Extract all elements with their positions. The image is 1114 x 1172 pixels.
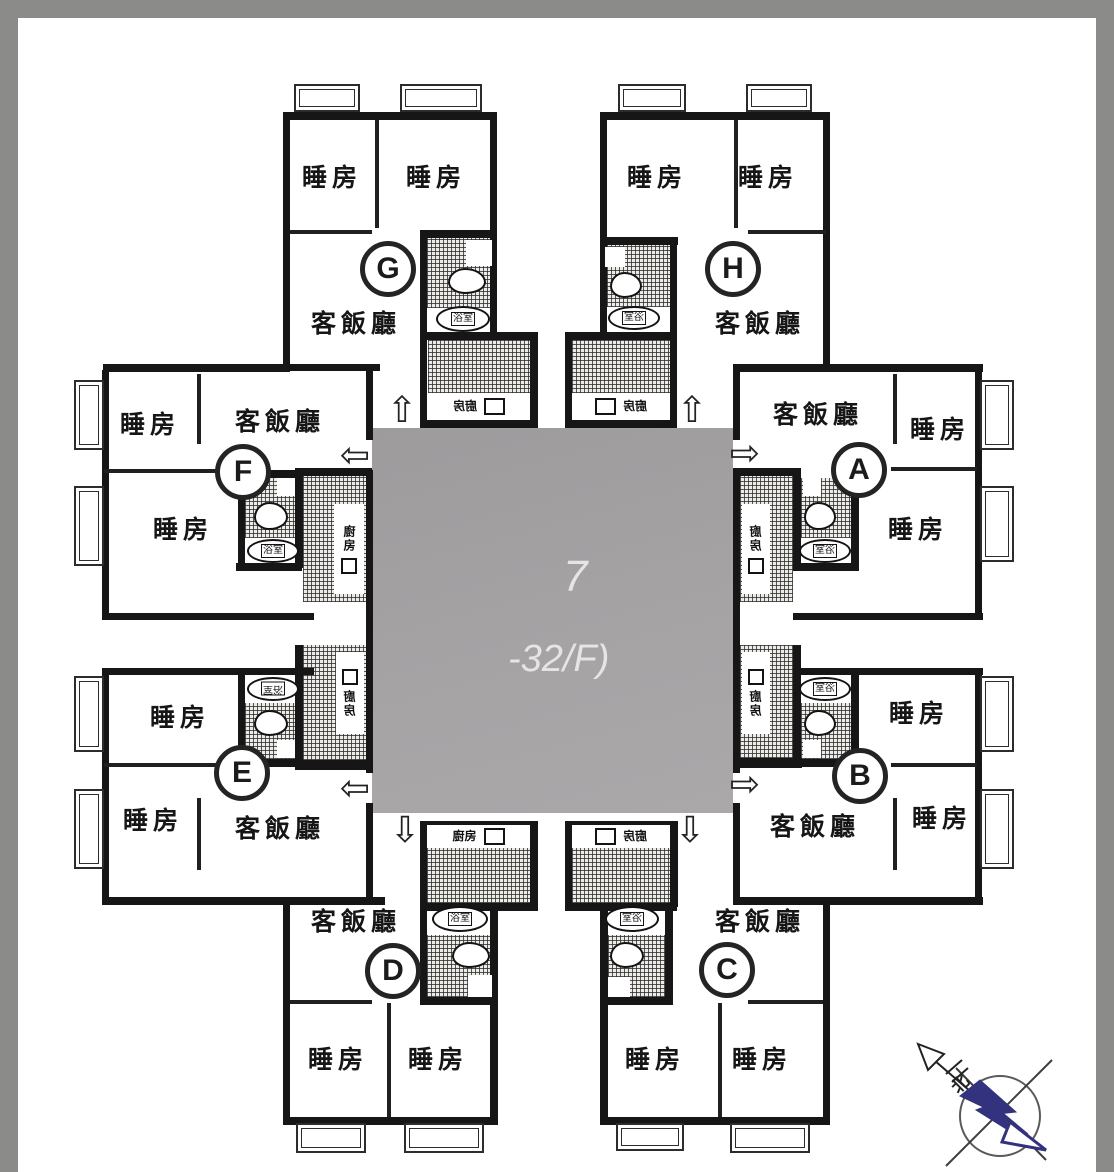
bathtub: 浴室 (436, 306, 490, 332)
wall (748, 1000, 826, 1004)
central-core (372, 428, 733, 813)
wall (530, 821, 538, 903)
wall (283, 905, 290, 1125)
window (980, 789, 1014, 869)
unit-h-badge: H (705, 241, 761, 297)
living-dining-label: 客飯廳 (770, 807, 860, 843)
toilet-icon (610, 272, 642, 298)
wall (366, 803, 373, 905)
wall (490, 903, 498, 1125)
wall (420, 230, 427, 428)
unit-g-badge: G (360, 241, 416, 297)
kitchen-hatch (428, 340, 530, 397)
window (74, 380, 104, 450)
bathroom-label: 浴室 (622, 311, 646, 325)
wall (600, 237, 678, 245)
unit-e-badge: E (214, 745, 270, 801)
wall (891, 467, 977, 471)
window (400, 84, 482, 112)
kitchen-sink-icon (595, 398, 616, 415)
shower-notch (277, 740, 295, 758)
frame-right (1096, 0, 1114, 1172)
window (296, 1123, 366, 1153)
kitchen-strip: 廚房 (572, 825, 670, 847)
living-dining-label: 客飯廳 (235, 809, 325, 845)
entrance-arrow-g-icon: ⇧ (387, 392, 417, 428)
bathroom-label: 浴室 (813, 682, 837, 696)
window (294, 84, 360, 112)
wall (823, 905, 830, 1125)
bathtub: 浴室 (799, 677, 851, 701)
entrance-arrow-f-icon: ⇦ (340, 437, 370, 473)
wall (103, 364, 290, 372)
bedroom-label: 睡房 (123, 801, 183, 837)
bathroom-label: 浴室 (620, 912, 644, 926)
kitchen-label: 廚房 (750, 690, 762, 718)
living-dining-label: 客飯廳 (715, 304, 805, 340)
entrance-arrow-h-icon: ⇧ (677, 392, 707, 428)
window (980, 486, 1014, 562)
toilet-icon (804, 710, 836, 736)
living-dining-label: 客飯廳 (773, 395, 863, 431)
wall (793, 563, 859, 571)
wall (748, 230, 826, 234)
wall (283, 112, 290, 371)
wall (600, 112, 830, 120)
toilet-icon (452, 942, 490, 968)
bathtub: 浴室 (247, 539, 299, 563)
shower-notch (468, 975, 492, 997)
wall (600, 997, 673, 1005)
bedroom-label: 睡房 (627, 158, 687, 194)
wall (490, 112, 497, 238)
core-floor-number: 7 (563, 552, 587, 602)
wall (236, 563, 302, 571)
kitchen-strip: 廚房 (336, 652, 364, 734)
kitchen-strip: 廚房 (572, 393, 670, 419)
shower-notch (605, 247, 625, 267)
window (618, 84, 686, 112)
compass-north-icon: 北 (912, 1038, 1072, 1168)
bedroom-label: 睡房 (150, 698, 210, 734)
living-dining-label: 客飯廳 (311, 304, 401, 340)
wall (102, 613, 314, 620)
wall (733, 470, 740, 773)
frame-top (0, 0, 1114, 18)
entrance-arrow-e-icon: ⇦ (340, 770, 370, 806)
window (980, 380, 1014, 450)
wall (793, 613, 983, 620)
bedroom-label: 睡房 (308, 1040, 368, 1076)
living-dining-label: 客飯廳 (235, 402, 325, 438)
entrance-arrow-b-icon: ⇨ (730, 766, 760, 802)
kitchen-label: 廚房 (453, 400, 477, 412)
wall (733, 364, 740, 440)
kitchen-label: 廚房 (343, 525, 355, 553)
kitchen-sink-icon (748, 669, 764, 685)
kitchen-strip: 廚房 (334, 504, 364, 594)
wall (420, 230, 497, 238)
wall (290, 1000, 372, 1004)
wall (793, 668, 983, 675)
bathroom-label: 浴室 (261, 682, 285, 696)
kitchen-label: 廚房 (623, 400, 647, 412)
window (404, 1123, 484, 1153)
wall (102, 668, 314, 675)
window (74, 676, 104, 752)
shower-notch (277, 478, 295, 496)
entrance-arrow-d-icon: ⇩ (390, 812, 420, 848)
unit-c-badge: C (699, 942, 755, 998)
kitchen-sink-icon (748, 558, 764, 574)
bedroom-label: 睡房 (153, 510, 213, 546)
wall (565, 821, 572, 903)
kitchen-label: 廚房 (344, 690, 356, 718)
bathroom-label: 浴室 (451, 312, 475, 326)
bathtub: 浴室 (608, 306, 660, 330)
wall (197, 798, 201, 870)
bedroom-label: 睡房 (625, 1040, 685, 1076)
wall (530, 332, 538, 428)
wall (565, 332, 572, 428)
wall (793, 645, 801, 767)
bedroom-label: 睡房 (408, 1040, 468, 1076)
bedroom-label: 睡房 (912, 799, 972, 835)
kitchen-strip: 廚房 (428, 393, 530, 419)
bedroom-label: 睡房 (888, 510, 948, 546)
shower-notch (803, 478, 821, 496)
shower-notch (803, 740, 821, 758)
living-dining-label: 客飯廳 (715, 902, 805, 938)
kitchen-hatch (572, 340, 670, 397)
bathtub: 浴室 (799, 539, 851, 563)
kitchen-label: 廚房 (623, 830, 647, 842)
entrance-arrow-a-icon: ⇨ (730, 435, 760, 471)
kitchen-sink-icon (595, 828, 616, 845)
window (74, 486, 104, 566)
wall (600, 903, 608, 1125)
unit-d-badge: D (365, 943, 421, 999)
kitchen-sink-icon (341, 558, 357, 574)
kitchen-sink-icon (484, 828, 505, 845)
bedroom-label: 睡房 (302, 158, 362, 194)
window (730, 1123, 810, 1153)
wall (420, 420, 538, 428)
toilet-icon (254, 710, 288, 736)
unit-f-badge: F (215, 444, 271, 500)
wall (893, 798, 897, 870)
unit-a-badge: A (831, 442, 887, 498)
kitchen-sink-icon (484, 398, 505, 415)
bathtub: 浴室 (432, 906, 488, 932)
toilet-icon (804, 502, 836, 530)
bathroom-label: 浴室 (261, 544, 285, 558)
window (980, 676, 1014, 752)
entrance-arrow-c-icon: ⇩ (675, 812, 705, 848)
shower-notch (466, 240, 492, 266)
wall (366, 364, 373, 440)
kitchen-hatch (572, 848, 670, 903)
wall (665, 903, 673, 997)
wall (891, 763, 977, 767)
wall (600, 112, 607, 245)
wall (283, 112, 497, 120)
kitchen-strip: 廚房 (742, 504, 770, 594)
frame-left (0, 0, 18, 1172)
bedroom-label: 睡房 (889, 694, 949, 730)
living-dining-label: 客飯廳 (311, 902, 401, 938)
wall (565, 332, 677, 340)
bedroom-label: 睡房 (738, 158, 798, 194)
bedroom-label: 睡房 (732, 1040, 792, 1076)
wall (735, 364, 983, 372)
kitchen-strip: 廚房 (427, 825, 530, 847)
kitchen-strip: 廚房 (742, 652, 770, 734)
wall (197, 374, 201, 444)
wall (733, 803, 740, 905)
wall (420, 332, 538, 340)
window (74, 789, 104, 869)
wall (375, 120, 379, 228)
wall (823, 112, 830, 371)
wall (290, 230, 372, 234)
bathroom-label: 浴室 (813, 544, 837, 558)
kitchen-sink-icon (342, 669, 358, 685)
bedroom-label: 睡房 (120, 405, 180, 441)
wall (565, 420, 677, 428)
bedroom-label: 睡房 (910, 410, 970, 446)
bedroom-label: 睡房 (406, 158, 466, 194)
unit-b-badge: B (832, 748, 888, 804)
wall (718, 1003, 722, 1117)
bathtub: 浴室 (247, 677, 299, 701)
bathtub: 浴室 (605, 906, 659, 932)
toilet-icon (254, 502, 288, 530)
wall (893, 374, 897, 444)
toilet-icon (448, 268, 486, 294)
toilet-icon (610, 942, 644, 968)
wall (387, 1003, 391, 1117)
window (616, 1123, 684, 1151)
wall (366, 470, 373, 773)
wall (420, 821, 427, 1005)
wall (295, 645, 303, 770)
kitchen-label: 廚房 (750, 525, 762, 553)
shower-notch (608, 977, 630, 997)
bathroom-label: 浴室 (448, 912, 472, 926)
kitchen-label: 廚房 (452, 830, 476, 842)
floor-plan-canvas: 7 -32/F) (0, 0, 1114, 1172)
wall (420, 997, 498, 1005)
window (746, 84, 812, 112)
kitchen-hatch (427, 848, 530, 903)
core-floor-range: -32/F) (508, 638, 609, 681)
